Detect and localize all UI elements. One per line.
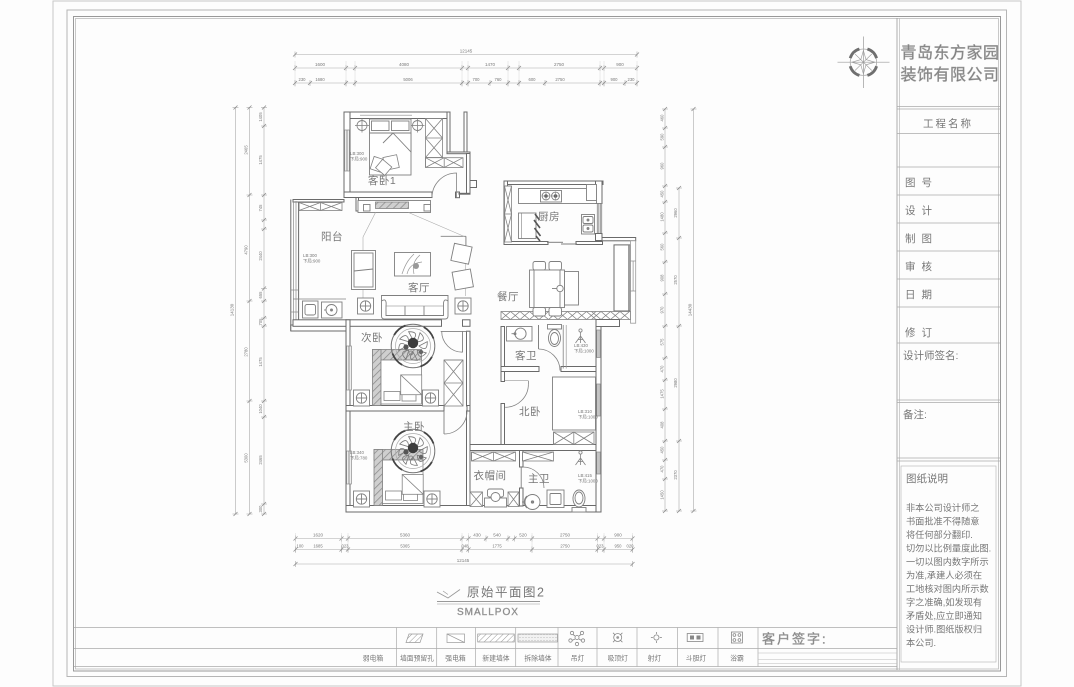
svg-text:一切以图内数字所示: 一切以图内数字所示 xyxy=(906,556,989,567)
svg-text:1405: 1405 xyxy=(258,112,263,122)
svg-text:2750: 2750 xyxy=(560,544,570,549)
svg-text:2750: 2750 xyxy=(555,77,565,82)
svg-text:新建墙体: 新建墙体 xyxy=(482,654,509,663)
svg-text:1450: 1450 xyxy=(660,490,665,500)
svg-text:900: 900 xyxy=(614,533,622,538)
svg-text:1040: 1040 xyxy=(258,404,263,414)
svg-text:为准,承建人必须在: 为准,承建人必须在 xyxy=(906,570,982,581)
svg-text:2750: 2750 xyxy=(560,533,571,538)
svg-text:950: 950 xyxy=(615,544,623,549)
svg-text:射灯: 射灯 xyxy=(648,654,662,663)
svg-text:1470: 1470 xyxy=(485,62,496,67)
svg-text:023: 023 xyxy=(342,544,350,549)
svg-text:14430: 14430 xyxy=(688,303,693,316)
svg-text:工地核对图内所示数: 工地核对图内所示数 xyxy=(906,583,989,594)
svg-text:590: 590 xyxy=(660,133,665,141)
svg-text:408: 408 xyxy=(660,421,665,429)
svg-text:900: 900 xyxy=(611,77,619,82)
svg-text:切勿以比例量度此图.: 切勿以比例量度此图. xyxy=(906,543,991,554)
svg-text:520: 520 xyxy=(519,533,527,538)
svg-text:次卧: 次卧 xyxy=(361,331,383,344)
svg-text:装饰有限公司: 装饰有限公司 xyxy=(900,66,999,84)
svg-text:230: 230 xyxy=(628,77,636,82)
svg-text:图纸说明: 图纸说明 xyxy=(906,472,948,485)
svg-text:970: 970 xyxy=(660,306,665,314)
svg-text:斗胆灯: 斗胆灯 xyxy=(686,654,707,663)
svg-text:2780: 2780 xyxy=(244,347,249,357)
svg-text:LB:415: LB:415 xyxy=(578,473,592,478)
svg-text:墙面预留孔: 墙面预留孔 xyxy=(400,654,434,663)
svg-text:衣帽间: 衣帽间 xyxy=(474,469,507,482)
svg-text:4790: 4790 xyxy=(244,245,249,255)
svg-text:书面批准不得随意: 书面批准不得随意 xyxy=(906,516,980,527)
svg-text:430: 430 xyxy=(473,533,481,538)
svg-text:LB:430: LB:430 xyxy=(574,343,588,348)
svg-text:制图: 制图 xyxy=(905,232,938,245)
svg-text:023: 023 xyxy=(597,544,605,549)
svg-text:450: 450 xyxy=(660,190,665,198)
svg-text:2980: 2980 xyxy=(673,378,678,388)
svg-text:1480: 1480 xyxy=(660,212,665,222)
svg-text:1680: 1680 xyxy=(315,77,325,82)
svg-text:2750: 2750 xyxy=(554,62,565,67)
svg-text:1475: 1475 xyxy=(258,357,263,367)
svg-text:强电箱: 强电箱 xyxy=(445,654,466,663)
svg-text:100: 100 xyxy=(297,544,305,549)
svg-text:吊灯: 吊灯 xyxy=(571,654,585,663)
svg-text:主卧: 主卧 xyxy=(403,420,425,433)
svg-text:青岛东方家园: 青岛东方家园 xyxy=(900,44,999,62)
svg-text:5006: 5006 xyxy=(403,77,413,82)
svg-text:1600: 1600 xyxy=(315,62,326,67)
svg-text:审核: 审核 xyxy=(905,260,938,273)
svg-text:1620: 1620 xyxy=(313,533,324,538)
svg-text:LB:310: LB:310 xyxy=(578,409,592,414)
svg-text:700: 700 xyxy=(473,77,481,82)
svg-text:客厅: 客厅 xyxy=(408,281,430,294)
svg-text:5365: 5365 xyxy=(400,544,410,549)
svg-text:705: 705 xyxy=(258,318,263,326)
svg-text:450: 450 xyxy=(660,446,665,454)
svg-text:900: 900 xyxy=(616,62,624,67)
svg-text:客卧1: 客卧1 xyxy=(368,174,396,187)
svg-text:1475: 1475 xyxy=(258,155,263,165)
svg-text:12145: 12145 xyxy=(460,49,473,54)
svg-text:矛盾处,应立即通知: 矛盾处,应立即通知 xyxy=(906,610,982,621)
svg-text:14130: 14130 xyxy=(230,303,235,316)
svg-text:2370: 2370 xyxy=(673,470,678,480)
svg-text:2465: 2465 xyxy=(244,145,249,155)
svg-text:048: 048 xyxy=(462,544,470,549)
svg-text:4080: 4080 xyxy=(399,62,410,67)
svg-text:1475: 1475 xyxy=(660,389,665,399)
svg-text:日期: 日期 xyxy=(905,289,938,301)
svg-text:540: 540 xyxy=(493,533,501,538)
svg-text:非本公司设计师之: 非本公司设计师之 xyxy=(906,502,980,513)
svg-text:LB:340: LB:340 xyxy=(350,450,364,455)
svg-text:SMALLPOX: SMALLPOX xyxy=(457,607,519,618)
svg-text:1685: 1685 xyxy=(313,544,323,549)
svg-text:2440: 2440 xyxy=(258,251,263,261)
svg-text:设计: 设计 xyxy=(905,204,938,217)
svg-text:工程名称: 工程名称 xyxy=(923,117,973,130)
svg-text:修订: 修订 xyxy=(905,326,938,339)
svg-text:760: 760 xyxy=(495,77,503,82)
svg-text:将任何部分翻印.: 将任何部分翻印. xyxy=(906,529,973,540)
svg-text:460: 460 xyxy=(660,114,665,122)
svg-text:575: 575 xyxy=(660,338,665,346)
svg-text:原始平面图2: 原始平面图2 xyxy=(467,586,545,600)
svg-text:2465: 2465 xyxy=(258,455,263,465)
svg-text:弱电箱: 弱电箱 xyxy=(363,654,384,663)
svg-text:设计师签名:: 设计师签名: xyxy=(903,349,958,362)
svg-text:备注:: 备注: xyxy=(903,408,927,421)
svg-text:600: 600 xyxy=(529,77,537,82)
svg-text:470: 470 xyxy=(660,465,665,473)
svg-text:LB:300: LB:300 xyxy=(303,253,317,258)
svg-text:5360: 5360 xyxy=(400,533,411,538)
svg-text:12145: 12145 xyxy=(457,558,470,563)
svg-text:2960: 2960 xyxy=(673,208,678,218)
svg-text:470: 470 xyxy=(660,365,665,373)
svg-text:阳台: 阳台 xyxy=(321,230,343,243)
svg-text:主卫: 主卫 xyxy=(528,473,550,485)
svg-text:北卧: 北卧 xyxy=(519,405,541,418)
svg-text:客户签字:: 客户签字: xyxy=(762,632,828,647)
svg-text:LB:300: LB:300 xyxy=(350,151,364,156)
svg-text:1775: 1775 xyxy=(492,544,502,549)
svg-text:908: 908 xyxy=(660,274,665,282)
svg-text:655: 655 xyxy=(258,291,263,299)
svg-text:厨房: 厨房 xyxy=(538,210,560,223)
svg-text:字之准确,如发现有: 字之准确,如发现有 xyxy=(906,597,982,608)
svg-text:300: 300 xyxy=(258,505,263,513)
svg-text:745: 745 xyxy=(258,204,263,212)
svg-text:拆除墙体: 拆除墙体 xyxy=(524,654,551,663)
svg-text:吸顶灯: 吸顶灯 xyxy=(608,654,629,663)
svg-text:5300: 5300 xyxy=(244,453,249,463)
svg-text:本公司.: 本公司. xyxy=(906,637,936,648)
svg-text:560: 560 xyxy=(660,243,665,251)
svg-text:2570: 2570 xyxy=(673,275,678,285)
svg-text:图号: 图号 xyxy=(905,177,938,189)
svg-text:设计师.图纸版权归: 设计师.图纸版权归 xyxy=(906,624,982,635)
svg-text:浴霸: 浴霸 xyxy=(730,654,744,663)
svg-text:020: 020 xyxy=(627,544,635,549)
svg-text:餐厅: 餐厅 xyxy=(497,290,519,303)
svg-text:230: 230 xyxy=(299,77,307,82)
svg-text:960: 960 xyxy=(660,162,665,170)
svg-text:客卫: 客卫 xyxy=(515,349,537,362)
